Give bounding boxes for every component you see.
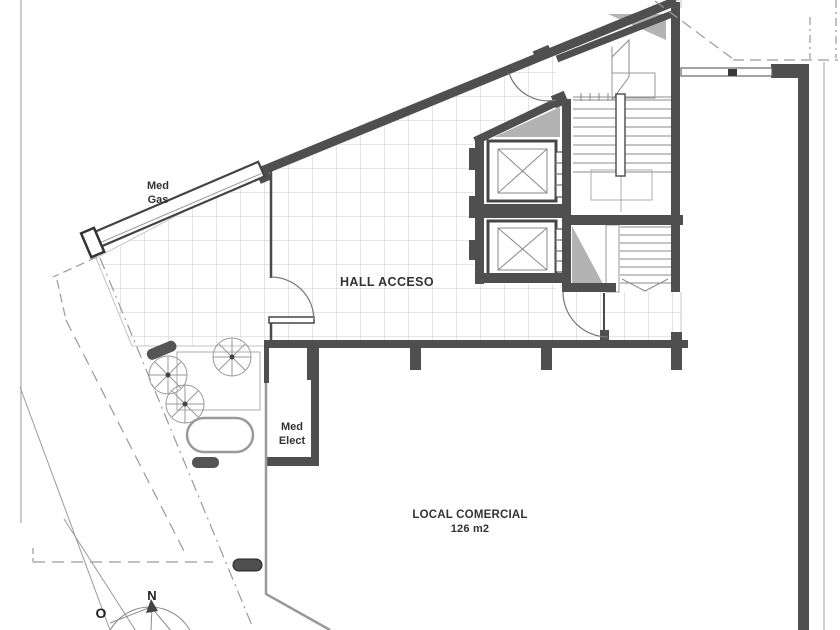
elevator-2-icon — [488, 221, 566, 277]
tree-icon — [166, 385, 204, 423]
secondary-stair-stringer — [606, 225, 619, 292]
hall-acceso-label: HALL ACCESO — [306, 275, 468, 291]
tree-icon — [213, 338, 251, 376]
tree-icon — [149, 356, 187, 394]
planter-outline — [177, 352, 260, 410]
med-gas-label: MedGas — [130, 180, 186, 208]
elevator-1-icon — [488, 141, 566, 201]
compass-north-label: N — [141, 588, 163, 604]
stair-center-rail — [616, 94, 625, 176]
floor-plan: MedGas HALL ACCESO MedElect LOCAL COMERC… — [0, 0, 840, 630]
med-elect-label: MedElect — [264, 421, 320, 449]
planter-stadium — [187, 418, 253, 452]
bench — [233, 559, 262, 571]
compass-west-label: O — [90, 605, 112, 623]
local-comercial-label: LOCAL COMERCIAL126 m2 — [389, 508, 551, 537]
bench — [192, 457, 219, 468]
area-label: 126 m2 — [451, 523, 490, 535]
